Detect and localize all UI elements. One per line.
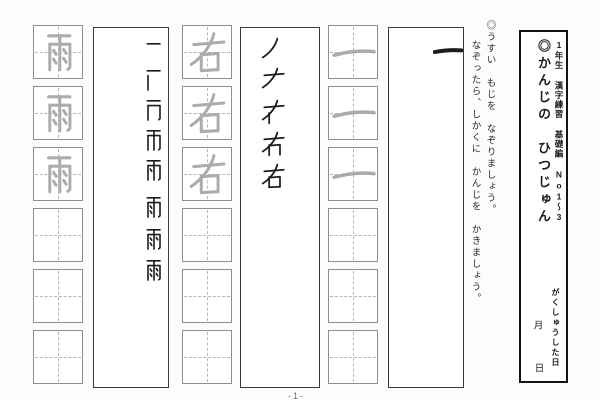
stroke-order-box-ame <box>93 27 169 388</box>
stroke-step-4 <box>260 131 287 163</box>
kanji-ichi-glyph <box>433 41 463 61</box>
practice-cell-empty <box>33 330 83 384</box>
stroke-step-3 <box>141 98 166 128</box>
worksheet-title: ◎かんじの ひつじゅん <box>537 39 550 226</box>
center-guide-h <box>184 235 230 236</box>
stroke-order-box-migi <box>240 27 320 388</box>
series-label: 1年生 漢字練習 基礎編 No1～3 <box>555 40 564 223</box>
center-guide-h <box>184 357 230 358</box>
kanji-migi-step4-glyph <box>260 131 287 158</box>
worksheet-page: 1年生 漢字練習 基礎編 No1～3 ◎かんじの ひつじゅん がくしゅうした日 … <box>0 0 600 400</box>
kanji-ame-step6-glyph <box>141 195 166 220</box>
kanji-ame-step2-glyph <box>141 68 166 93</box>
kanji-migi-step2-glyph <box>260 67 287 94</box>
kanji-ame-step8-glyph <box>141 258 166 283</box>
kanji-ichi-trace-glyph <box>331 153 377 197</box>
kanji-ichi-trace-glyph <box>331 92 377 136</box>
practice-cell-empty <box>33 269 83 323</box>
practice-cell-empty <box>328 208 378 262</box>
kanji-ame-step3-glyph <box>141 98 166 123</box>
stroke-step-6 <box>141 195 166 225</box>
kanji-migi-step1-glyph <box>260 37 287 64</box>
stroke-step-5 <box>260 163 287 195</box>
practice-cell-traced <box>33 25 83 79</box>
kanji-ame-trace-glyph <box>38 153 80 197</box>
day-label: 日 <box>533 363 543 373</box>
instruction-line-1: ◎うすい もじを なぞりましょう。 <box>484 20 494 216</box>
month-label: 月 <box>532 320 542 330</box>
practice-cell-traced <box>182 147 232 201</box>
stroke-step-4 <box>141 128 166 158</box>
stroke-order-box-ichi <box>388 27 464 388</box>
header-box: 1年生 漢字練習 基礎編 No1～3 ◎かんじの ひつじゅん がくしゅうした日 … <box>519 30 568 383</box>
page-number: -1- <box>288 391 305 400</box>
practice-cell-empty <box>33 208 83 262</box>
kanji-migi-step5-glyph <box>260 163 287 190</box>
study-date-label: がくしゅうした日 <box>551 288 559 368</box>
practice-cell-traced <box>182 86 232 140</box>
kanji-ame-trace-glyph <box>38 31 80 75</box>
center-guide-h <box>35 357 81 358</box>
stroke-step-2 <box>141 68 166 98</box>
practice-cell-empty <box>182 269 232 323</box>
practice-cell-empty <box>182 208 232 262</box>
kanji-migi-trace-glyph <box>187 31 229 75</box>
kanji-ichi-trace-glyph <box>331 31 377 75</box>
center-guide-h <box>184 296 230 297</box>
instruction-line-2: なぞったら、しかくに かんじを かきましょう。 <box>469 40 479 305</box>
stroke-step-1 <box>433 41 463 66</box>
practice-cell-traced <box>182 25 232 79</box>
stroke-step-2 <box>260 67 287 99</box>
kanji-ame-step1-glyph <box>141 41 166 66</box>
stroke-step-3 <box>260 99 287 131</box>
practice-cell-empty <box>182 330 232 384</box>
center-guide-h <box>330 296 376 297</box>
kanji-migi-trace-glyph <box>187 92 229 136</box>
practice-cell-traced <box>328 86 378 140</box>
kanji-ame-step5-glyph <box>141 158 166 183</box>
practice-cell-traced <box>328 25 378 79</box>
stroke-step-8 <box>141 258 166 288</box>
practice-cell-empty <box>328 269 378 323</box>
center-guide-h <box>35 296 81 297</box>
kanji-ame-step4-glyph <box>141 128 166 153</box>
practice-cell-empty <box>328 330 378 384</box>
center-guide-h <box>330 235 376 236</box>
practice-cell-traced <box>33 147 83 201</box>
stroke-step-1 <box>141 41 166 71</box>
kanji-migi-step3-glyph <box>260 99 287 126</box>
practice-cell-traced <box>328 147 378 201</box>
center-guide-h <box>35 235 81 236</box>
kanji-migi-trace-glyph <box>187 153 229 197</box>
stroke-step-1 <box>260 37 287 69</box>
stroke-step-5 <box>141 158 166 188</box>
kanji-ame-trace-glyph <box>38 92 80 136</box>
practice-cell-traced <box>33 86 83 140</box>
stroke-step-7 <box>141 227 166 257</box>
kanji-ame-step7-glyph <box>141 227 166 252</box>
center-guide-h <box>330 357 376 358</box>
